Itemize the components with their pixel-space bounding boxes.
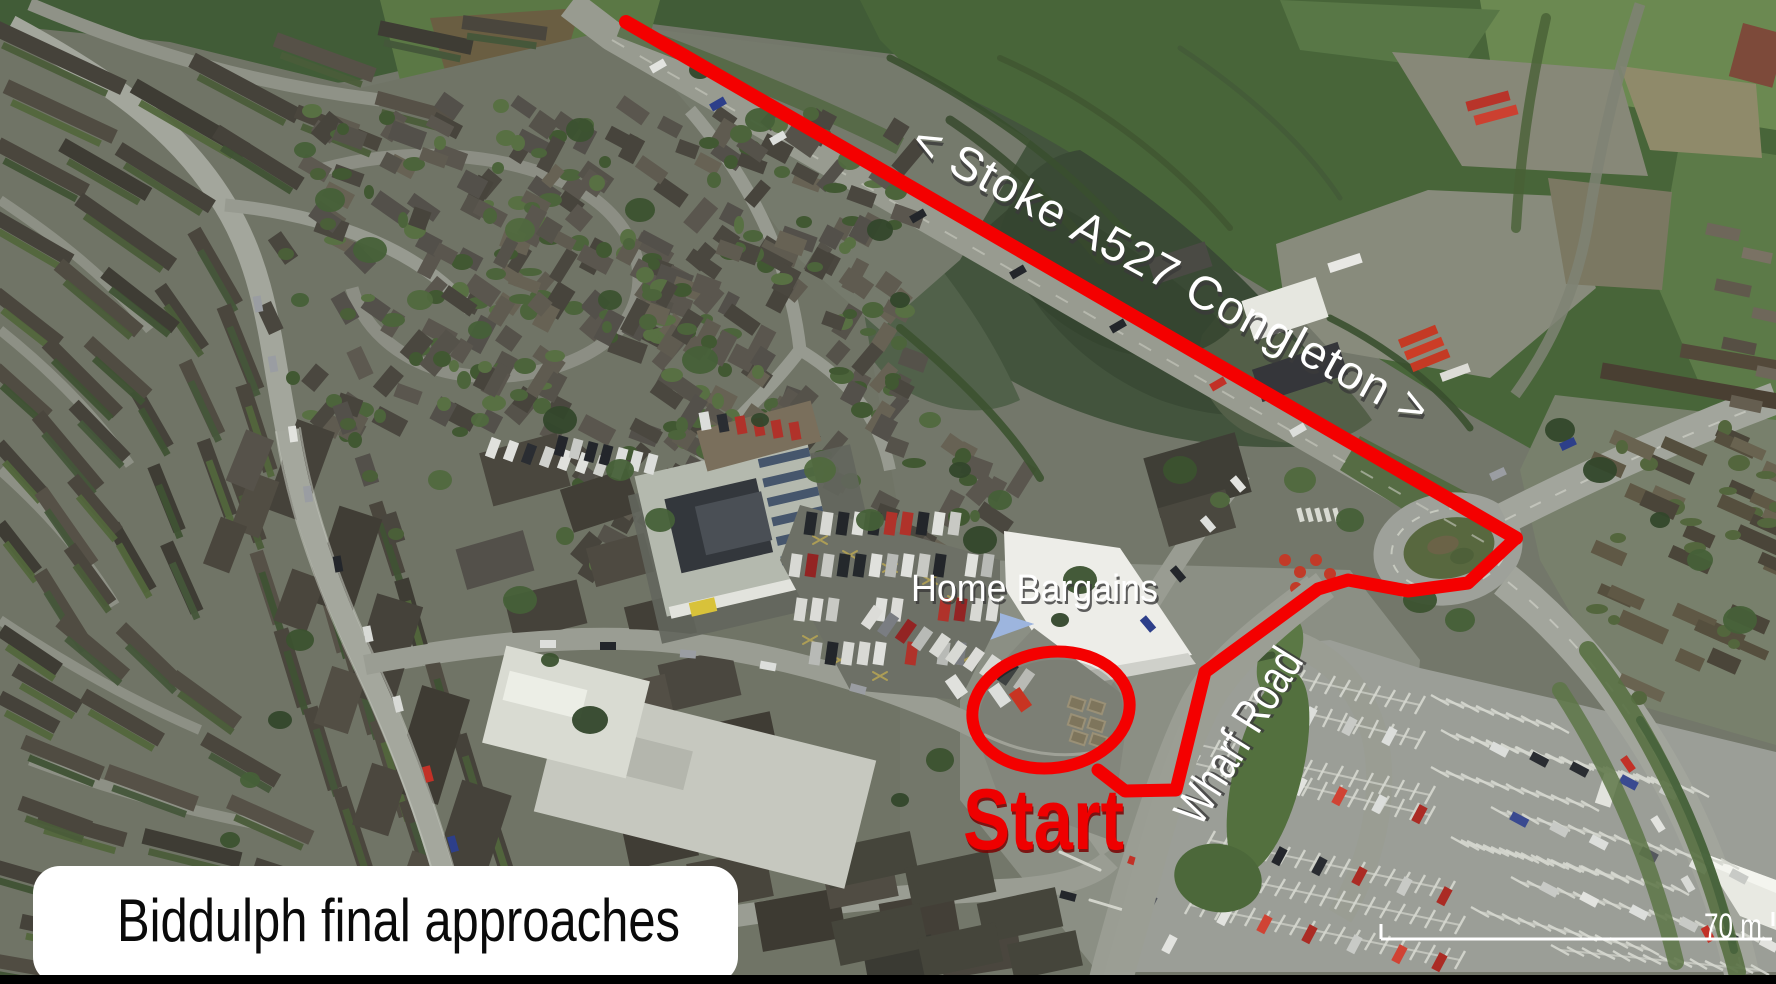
svg-text:Home Bargains: Home Bargains (911, 568, 1158, 610)
svg-text:70 m: 70 m (1704, 907, 1762, 946)
svg-text:Biddulph final approaches: Biddulph final approaches (117, 887, 680, 954)
svg-text:Start: Start (963, 772, 1124, 868)
